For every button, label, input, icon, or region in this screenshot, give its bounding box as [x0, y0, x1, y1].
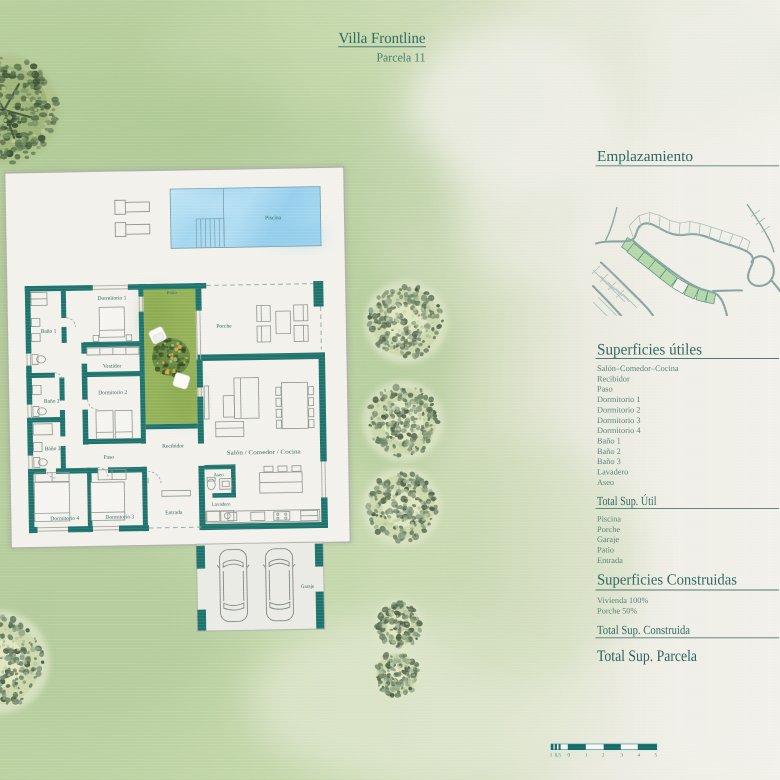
svg-text:Dormitorio 3: Dormitorio 3: [105, 514, 134, 521]
svg-text:Garaje: Garaje: [597, 535, 619, 544]
svg-text:Dormitorio 1: Dormitorio 1: [597, 395, 641, 404]
svg-text:Dormitorio 2: Dormitorio 2: [98, 389, 127, 396]
svg-text:Parcela 11: Parcela 11: [377, 51, 426, 65]
svg-text:Patio: Patio: [597, 546, 614, 555]
svg-text:4: 4: [637, 753, 640, 759]
svg-text:Dormitorio 1: Dormitorio 1: [97, 295, 126, 302]
svg-text:1: 1: [550, 753, 553, 759]
svg-text:Piscina: Piscina: [265, 215, 281, 221]
svg-text:Recibidor: Recibidor: [597, 374, 630, 383]
svg-text:Villa Frontline: Villa Frontline: [339, 30, 426, 47]
svg-text:Baño 3: Baño 3: [45, 446, 61, 452]
svg-text:Superficies útiles: Superficies útiles: [597, 341, 702, 358]
svg-text:Paso: Paso: [103, 454, 114, 460]
svg-text:5: 5: [655, 753, 658, 759]
svg-text:Baño 1: Baño 1: [41, 328, 57, 334]
svg-text:3: 3: [620, 753, 623, 759]
svg-text:Garaje: Garaje: [301, 584, 315, 590]
svg-text:Porche: Porche: [216, 323, 231, 329]
svg-text:Entrada: Entrada: [597, 556, 623, 565]
svg-text:Dormitorio 2: Dormitorio 2: [597, 405, 641, 414]
svg-text:Superficies Construidas: Superficies Construidas: [597, 571, 737, 588]
svg-text:Baño 1: Baño 1: [597, 436, 621, 445]
svg-text:Piscina: Piscina: [597, 515, 621, 524]
svg-text:Aseo: Aseo: [597, 478, 614, 487]
svg-text:Dormitorio 3: Dormitorio 3: [597, 416, 641, 425]
svg-text:Aseo: Aseo: [213, 472, 223, 478]
svg-text:0,5: 0,5: [555, 753, 561, 759]
svg-text:Baño 3: Baño 3: [597, 457, 621, 466]
svg-text:Porche: Porche: [597, 525, 620, 534]
svg-text:Salón–Comedor–Cocina: Salón–Comedor–Cocina: [597, 364, 679, 373]
svg-text:Vestidor: Vestidor: [103, 363, 122, 369]
svg-text:Lavadero: Lavadero: [597, 468, 628, 477]
svg-text:Total Sup. Útil: Total Sup. Útil: [597, 494, 657, 508]
svg-text:Total Sup. Parcela: Total Sup. Parcela: [597, 648, 697, 665]
svg-text:Baño 2: Baño 2: [597, 447, 621, 456]
svg-text:1: 1: [585, 753, 588, 759]
svg-text:Total Sup. Construida: Total Sup. Construida: [597, 623, 690, 637]
svg-text:Dormitorio 4: Dormitorio 4: [597, 426, 641, 435]
svg-text:0: 0: [567, 753, 570, 759]
svg-text:Baño 2: Baño 2: [44, 398, 60, 404]
svg-text:Paso: Paso: [597, 385, 613, 394]
svg-text:Dormitorio 4: Dormitorio 4: [50, 515, 79, 522]
svg-text:Porche 50%: Porche 50%: [597, 606, 637, 615]
svg-text:Entrada: Entrada: [165, 509, 182, 515]
svg-text:Patio: Patio: [167, 290, 177, 296]
svg-text:Vivienda 100%: Vivienda 100%: [597, 596, 648, 605]
svg-text:Emplazamiento: Emplazamiento: [597, 148, 693, 165]
svg-text:2: 2: [602, 753, 605, 759]
svg-text:Salón / Comedor / Cocina: Salón / Comedor / Cocina: [227, 448, 302, 456]
svg-text:Recibidor: Recibidor: [162, 443, 184, 449]
svg-text:Lavadero: Lavadero: [212, 502, 231, 508]
